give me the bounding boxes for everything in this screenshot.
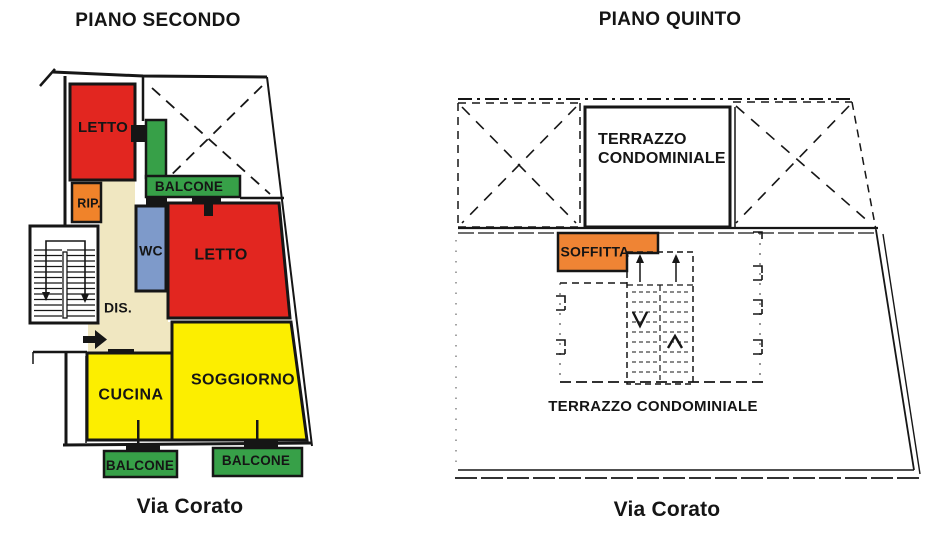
- stair-arrow-up: [636, 254, 644, 263]
- room-label-balcone-dx: BALCONE: [222, 454, 290, 468]
- area-label-terrazzo-top: TERRAZZO CONDOMINIALE: [598, 130, 726, 168]
- room-label-balcone-top: BALCONE: [155, 180, 223, 194]
- room-label-soggiorno: SOGGIORNO: [191, 373, 295, 390]
- street-label-left: Via Corato: [137, 496, 244, 518]
- room-balcone-top-vertical: [146, 120, 166, 178]
- stair-arrow-up: [672, 254, 680, 263]
- terrazzo-top-line2: CONDOMINIALE: [598, 149, 726, 168]
- stair-core: [627, 252, 693, 384]
- terrazzo-top-line1: TERRAZZO: [598, 130, 726, 149]
- plan-title-secondo: PIANO SECONDO: [75, 11, 240, 31]
- floorplan-linework: [0, 0, 936, 536]
- room-label-dis: DIS.: [104, 301, 132, 316]
- room-label-wc: WC: [139, 244, 163, 259]
- floorplan-sheet: PIANO SECONDO PIANO QUINTO LETTO BALCONE…: [0, 0, 936, 536]
- outer-corner-cut: [40, 69, 55, 86]
- room-label-rip: RIP.: [77, 197, 101, 210]
- plan-secondo-geometry: [30, 69, 312, 477]
- top-wall: [53, 72, 267, 77]
- void-cross-diagonal: [462, 107, 576, 223]
- area-label-soffitta: SOFFITTA: [561, 245, 630, 260]
- stairwell: [30, 226, 98, 323]
- room-label-letto-2: LETTO: [194, 248, 247, 265]
- room-label-letto-1: LETTO: [78, 120, 128, 136]
- stair-chevron-down: [633, 312, 647, 326]
- site-boundary-slant: [876, 230, 914, 470]
- void-cross-diagonal: [736, 106, 870, 223]
- area-label-terrazzo-bottom: TERRAZZO CONDOMINIALE: [548, 399, 758, 415]
- void-cross-diagonal: [158, 86, 262, 188]
- street-label-right: Via Corato: [614, 499, 721, 521]
- room-label-balcone-sx: BALCONE: [106, 459, 174, 473]
- plan-title-quinto: PIANO QUINTO: [599, 10, 742, 30]
- room-label-cucina: CUCINA: [98, 388, 163, 405]
